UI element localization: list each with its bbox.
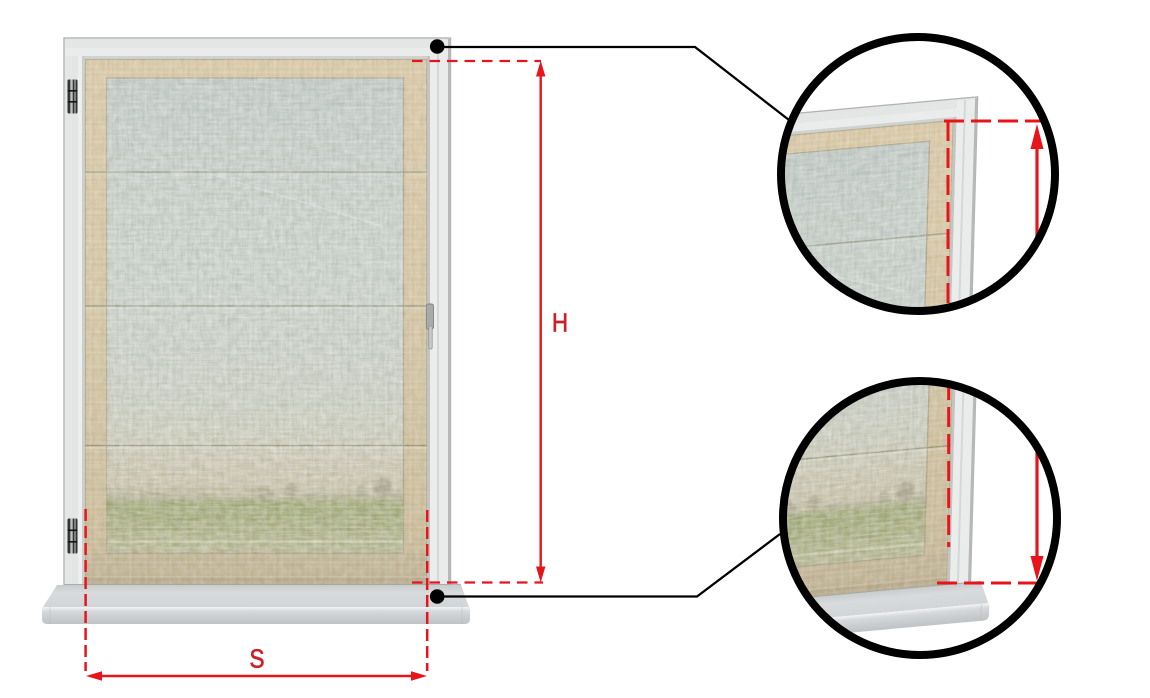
svg-text:H: H (552, 308, 568, 338)
svg-text:S: S (250, 644, 265, 674)
